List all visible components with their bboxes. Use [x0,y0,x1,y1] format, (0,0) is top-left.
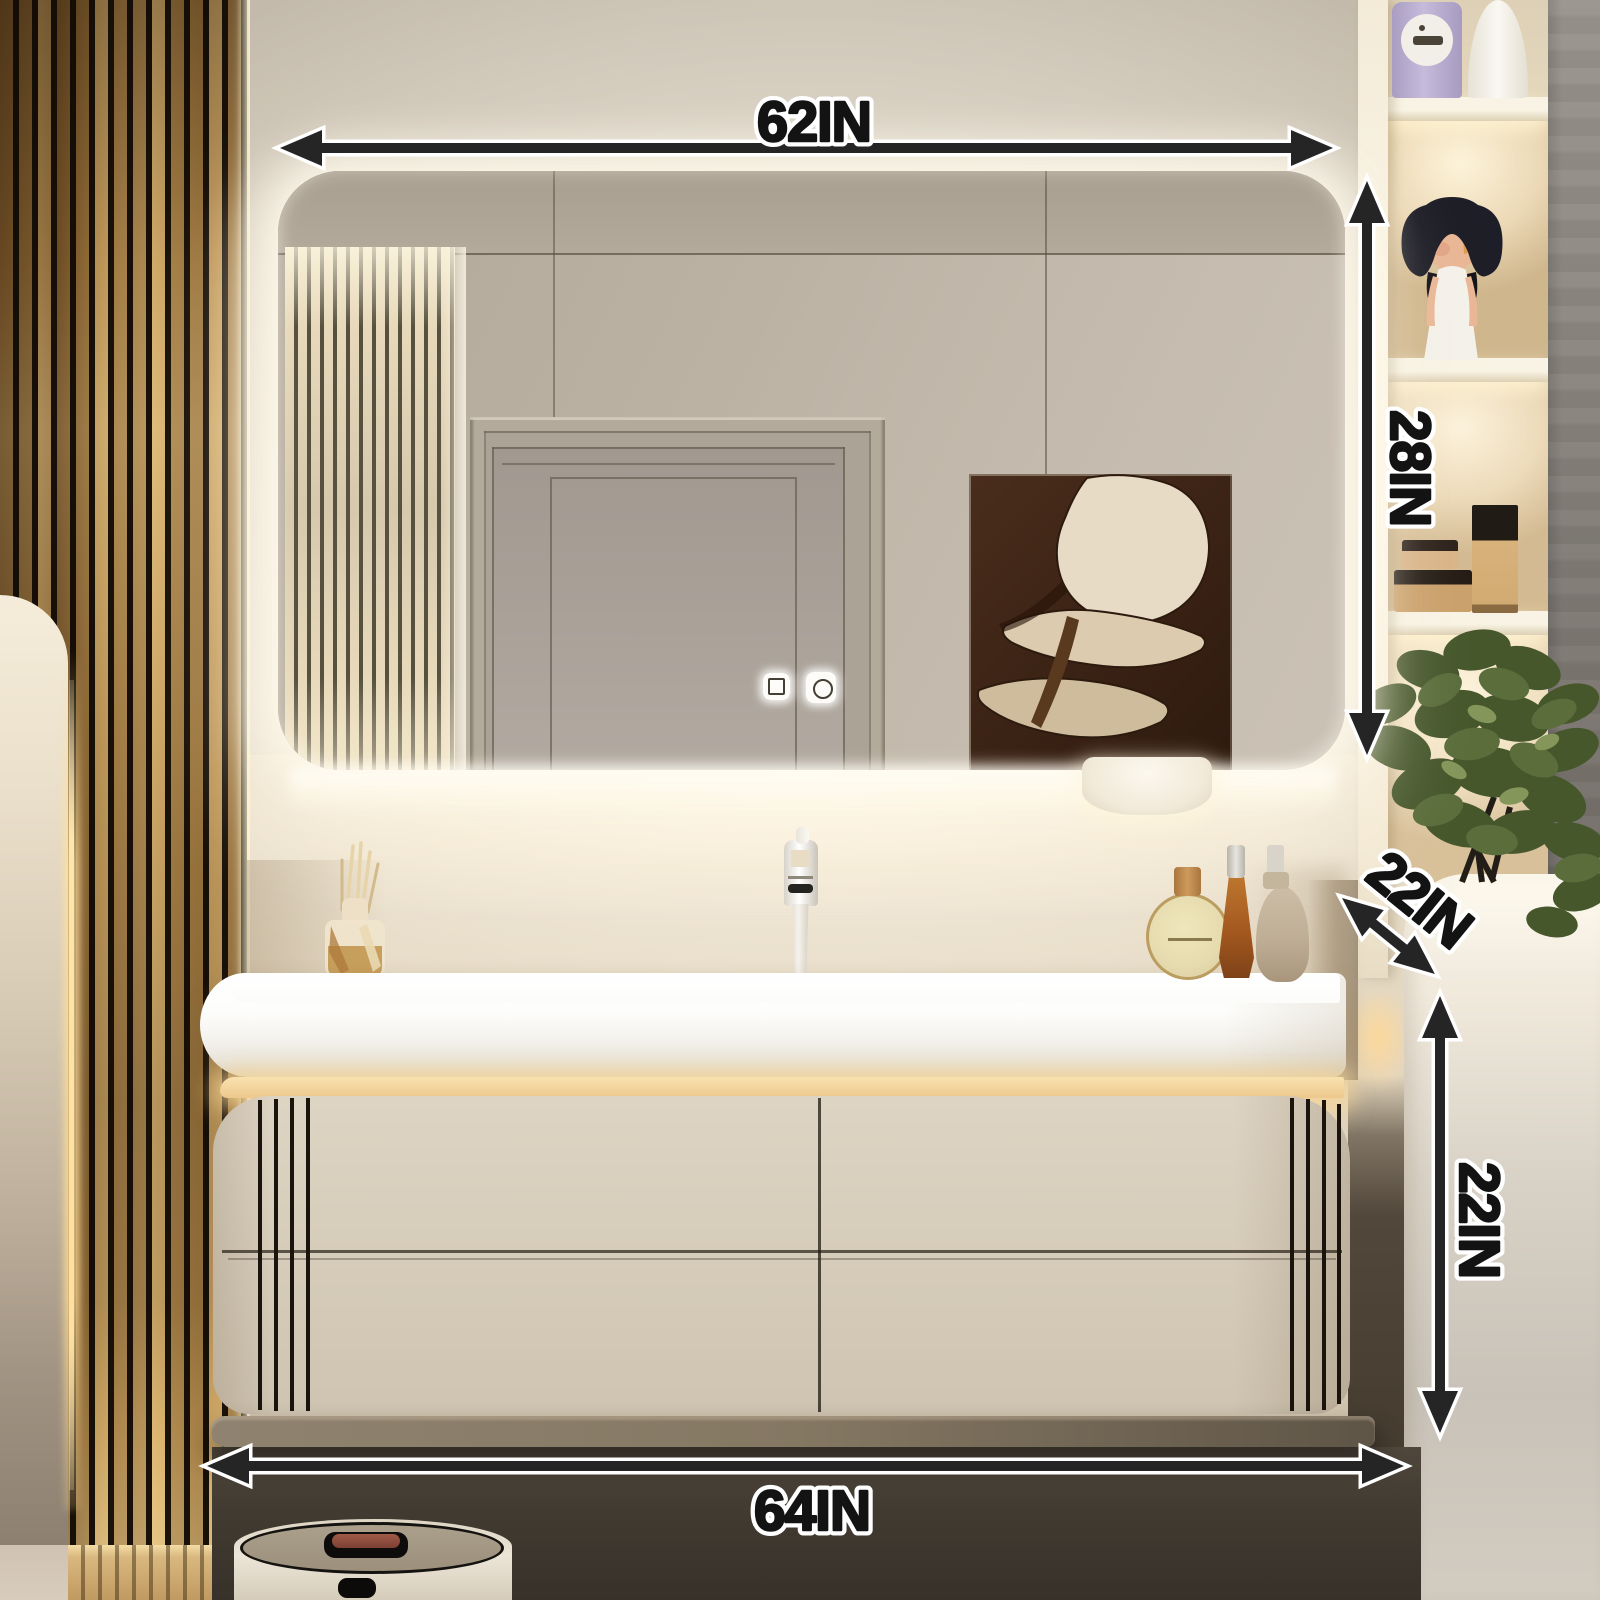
svg-text:22IN: 22IN [1447,1162,1511,1278]
svg-text:28IN: 28IN [1378,410,1442,526]
svg-text:62IN: 62IN [757,90,871,154]
svg-text:64IN: 64IN [754,1479,870,1543]
